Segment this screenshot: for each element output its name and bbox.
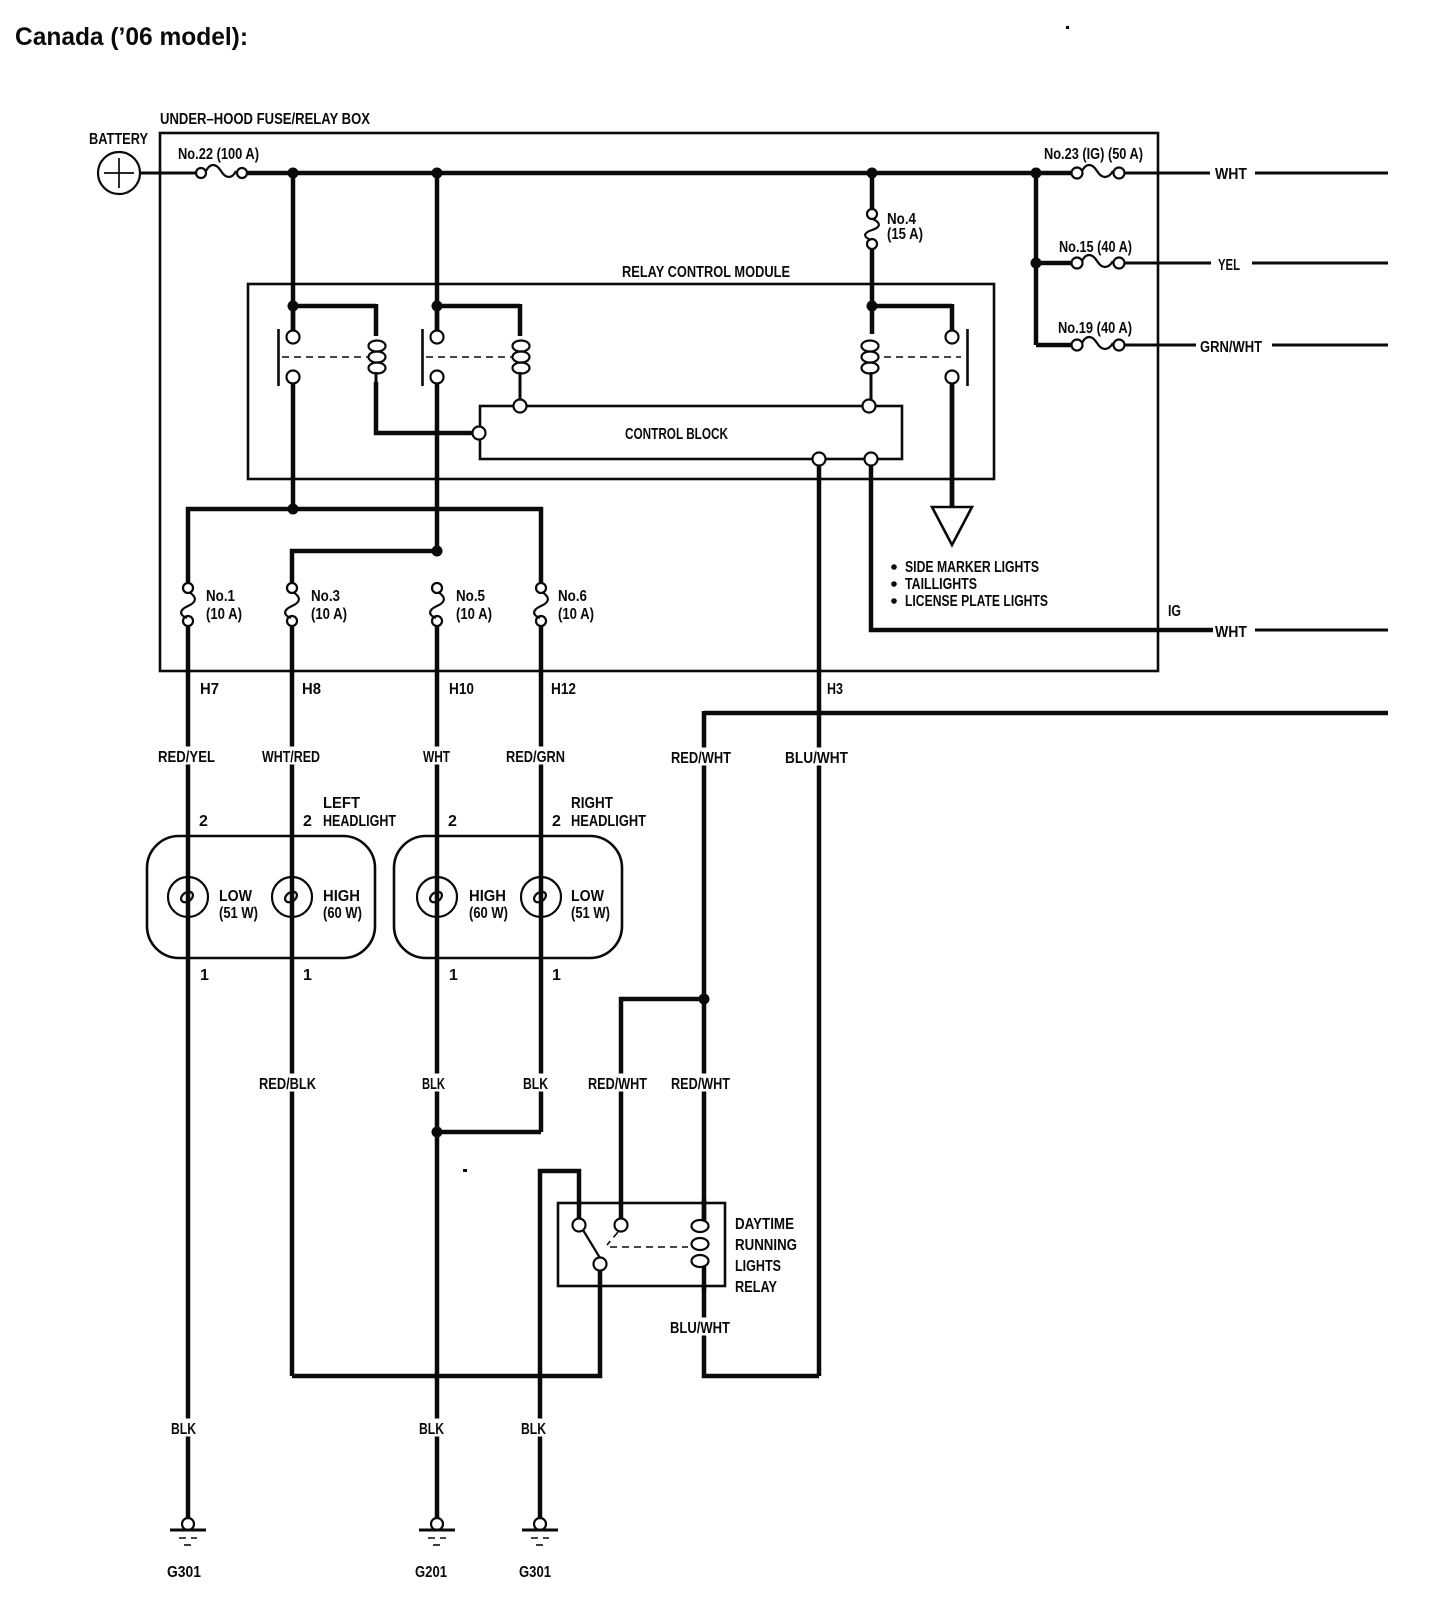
svg-text:TAILLIGHTS: TAILLIGHTS xyxy=(905,576,977,593)
svg-text:H7: H7 xyxy=(200,681,219,698)
svg-text:BLK: BLK xyxy=(171,1421,196,1438)
svg-text:WHT: WHT xyxy=(1215,624,1247,641)
svg-text:RELAY CONTROL MODULE: RELAY CONTROL MODULE xyxy=(622,264,790,281)
svg-text:LOW: LOW xyxy=(219,888,253,905)
svg-text:YEL: YEL xyxy=(1218,257,1240,274)
svg-text:HEADLIGHT: HEADLIGHT xyxy=(571,813,646,830)
svg-text:1: 1 xyxy=(552,967,561,984)
svg-text:(51 W): (51 W) xyxy=(219,905,258,922)
svg-text:BLK: BLK xyxy=(521,1421,546,1438)
svg-text:1: 1 xyxy=(200,967,209,984)
svg-text:BLK: BLK xyxy=(422,1076,445,1093)
svg-text:RED/YEL: RED/YEL xyxy=(158,749,215,766)
svg-text:H12: H12 xyxy=(551,681,576,698)
svg-text:RED/WHT: RED/WHT xyxy=(671,750,731,767)
svg-text:G301: G301 xyxy=(519,1564,551,1581)
svg-text:H10: H10 xyxy=(449,681,474,698)
svg-text:RED/WHT: RED/WHT xyxy=(588,1076,647,1093)
svg-text:IG: IG xyxy=(1168,603,1181,620)
svg-text:(10 A): (10 A) xyxy=(456,606,492,623)
svg-text:No.15 (40 A): No.15 (40 A) xyxy=(1059,239,1132,256)
svg-text:(10 A): (10 A) xyxy=(558,606,594,623)
svg-text:H3: H3 xyxy=(827,681,843,698)
svg-text:(60 W): (60 W) xyxy=(469,905,508,922)
svg-text:GRN/WHT: GRN/WHT xyxy=(1200,339,1262,356)
svg-text:LOW: LOW xyxy=(571,888,605,905)
svg-text:UNDER–HOOD FUSE/RELAY BOX: UNDER–HOOD FUSE/RELAY BOX xyxy=(160,111,370,128)
svg-text:RIGHT: RIGHT xyxy=(571,795,613,812)
svg-text:No.1: No.1 xyxy=(206,588,235,605)
svg-text:WHT/RED: WHT/RED xyxy=(262,749,320,766)
svg-text:No.19 (40 A): No.19 (40 A) xyxy=(1058,320,1132,337)
svg-text:CONTROL BLOCK: CONTROL BLOCK xyxy=(625,426,728,443)
svg-text:LICENSE PLATE LIGHTS: LICENSE PLATE LIGHTS xyxy=(905,593,1048,610)
svg-text:RUNNING: RUNNING xyxy=(735,1237,797,1254)
svg-text:HIGH: HIGH xyxy=(323,888,360,905)
svg-text:BLU/WHT: BLU/WHT xyxy=(670,1320,730,1337)
svg-text:No.5: No.5 xyxy=(456,588,485,605)
svg-text:BLK: BLK xyxy=(419,1421,444,1438)
svg-text:2: 2 xyxy=(552,813,561,830)
svg-text:SIDE MARKER LIGHTS: SIDE MARKER LIGHTS xyxy=(905,559,1039,576)
svg-text:RED/GRN: RED/GRN xyxy=(506,749,565,766)
svg-text:(15 A): (15 A) xyxy=(887,226,923,243)
svg-text:RED/WHT: RED/WHT xyxy=(671,1076,730,1093)
svg-text:2: 2 xyxy=(448,813,457,830)
svg-text:BLU/WHT: BLU/WHT xyxy=(785,750,848,767)
svg-text:HEADLIGHT: HEADLIGHT xyxy=(323,813,396,830)
svg-text:1: 1 xyxy=(303,967,312,984)
svg-text:No.3: No.3 xyxy=(311,588,340,605)
svg-text:Canada (’06 model):: Canada (’06 model): xyxy=(15,23,248,51)
svg-text:(60 W): (60 W) xyxy=(323,905,362,922)
svg-text:2: 2 xyxy=(199,813,208,830)
svg-text:DAYTIME: DAYTIME xyxy=(735,1216,794,1233)
svg-text:G201: G201 xyxy=(415,1564,447,1581)
svg-text:No.6: No.6 xyxy=(558,588,587,605)
svg-text:G301: G301 xyxy=(167,1564,201,1581)
svg-text:HIGH: HIGH xyxy=(469,888,506,905)
svg-text:No.22 (100 A): No.22 (100 A) xyxy=(178,146,259,163)
svg-text:(51 W): (51 W) xyxy=(571,905,610,922)
svg-text:(10 A): (10 A) xyxy=(206,606,242,623)
svg-text:No.23 (IG) (50 A): No.23 (IG) (50 A) xyxy=(1044,146,1143,163)
svg-text:LEFT: LEFT xyxy=(323,795,360,812)
svg-text:RELAY: RELAY xyxy=(735,1279,777,1296)
svg-text:LIGHTS: LIGHTS xyxy=(735,1258,781,1275)
svg-text:H8: H8 xyxy=(302,681,321,698)
svg-text:BATTERY: BATTERY xyxy=(89,131,148,148)
svg-text:WHT: WHT xyxy=(423,749,450,766)
svg-text:WHT: WHT xyxy=(1215,166,1247,183)
svg-text:BLK: BLK xyxy=(523,1076,548,1093)
svg-text:RED/BLK: RED/BLK xyxy=(259,1076,316,1093)
svg-text:2: 2 xyxy=(303,813,312,830)
svg-text:(10 A): (10 A) xyxy=(311,606,347,623)
svg-text:1: 1 xyxy=(449,967,458,984)
